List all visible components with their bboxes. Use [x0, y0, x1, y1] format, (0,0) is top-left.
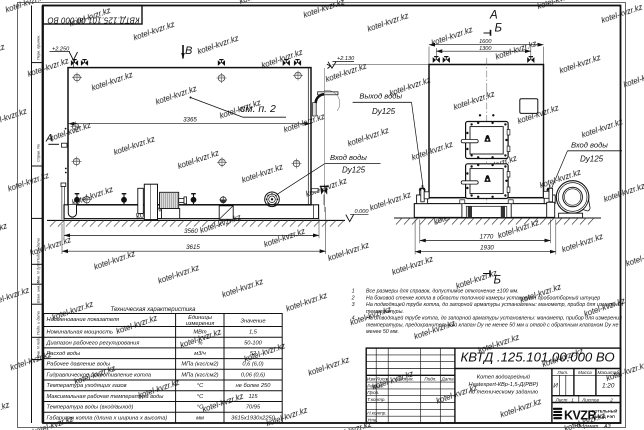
svg-text:70/95: 70/95	[246, 405, 261, 411]
svg-text:не более 250: не более 250	[236, 383, 272, 389]
svg-text:Котел водогрейный: Котел водогрейный	[477, 374, 530, 381]
svg-text:2: 2	[351, 295, 355, 301]
svg-text:мм: мм	[196, 415, 204, 421]
svg-text:м3/ч: м3/ч	[194, 351, 206, 357]
svg-text:Т.контр.: Т.контр.	[367, 397, 386, 402]
svg-text:измерения: измерения	[186, 321, 214, 327]
svg-text:1:20: 1:20	[602, 383, 615, 390]
svg-text:Выход воды: Выход воды	[359, 92, 402, 101]
svg-text:Диапазон рабочего регулировани: Диапазон рабочего регулирования	[46, 340, 140, 346]
svg-text:115: 115	[248, 394, 258, 400]
svg-text:Подп. и дата: Подп. и дата	[37, 238, 41, 262]
svg-text:Дата: Дата	[441, 376, 455, 381]
svg-text:Утв.: Утв.	[367, 417, 377, 422]
svg-text:Пров.: Пров.	[367, 390, 379, 395]
svg-text:Dy125: Dy125	[342, 165, 366, 174]
svg-text:ЗАВОД РЭП: ЗАВОД РЭП	[592, 414, 615, 419]
svg-text:Вход воды: Вход воды	[571, 141, 608, 150]
svg-text:На подводящей трубе котла, до: На подводящей трубе котла, до запорной а…	[366, 301, 624, 308]
svg-text:Heatexpert-КВр-1,5-Д(РВР): Heatexpert-КВр-1,5-Д(РВР)	[469, 382, 539, 388]
svg-text:КВТД .125.101.00.000 ВО: КВТД .125.101.00.000 ВО	[461, 349, 615, 364]
svg-text:менее 50 мм.: менее 50 мм.	[366, 329, 399, 335]
svg-text:Справ. Nо: Справ. Nо	[37, 144, 41, 162]
svg-text:3615: 3615	[186, 244, 200, 251]
svg-text:4: 4	[352, 316, 355, 322]
svg-text:Лист: Лист	[555, 397, 568, 402]
svg-text:Габариты котла (длина х ширина: Габариты котла (длина х ширина х высота)	[47, 415, 168, 421]
svg-text:Взам. инв. N: Взам. инв. N	[37, 281, 41, 303]
svg-text:Формат: Формат	[577, 424, 599, 430]
svg-text:А: А	[45, 132, 53, 144]
svg-text:Инв. N дубл.: Инв. N дубл.	[37, 261, 41, 283]
svg-text:Инв. N подл.: Инв. N подл.	[37, 336, 41, 358]
svg-text:Масштаб: Масштаб	[597, 370, 619, 375]
svg-text:Подп.: Подп.	[424, 376, 436, 381]
svg-text:0,6 (6,0): 0,6 (6,0)	[242, 362, 263, 368]
svg-text:Листов: Листов	[581, 397, 599, 402]
svg-text:Dy125: Dy125	[372, 107, 396, 116]
svg-text:В: В	[185, 45, 192, 57]
svg-text:50-100: 50-100	[244, 340, 263, 346]
svg-text:3615х1930х2250: 3615х1930х2250	[231, 415, 275, 421]
svg-text:температуры, предохранительный: температуры, предохранительный клапан Dу…	[366, 321, 618, 328]
svg-text:Изм: Изм	[367, 376, 376, 381]
svg-text:°С: °С	[197, 394, 204, 400]
svg-text:1: 1	[571, 397, 574, 402]
svg-text:Подп. и дата: Подп. и дата	[37, 311, 41, 335]
svg-text:1: 1	[352, 289, 355, 295]
svg-text:3365: 3365	[183, 117, 197, 124]
svg-text:по техническому заданию: по техническому заданию	[469, 390, 539, 396]
svg-text:Наименование показателя: Наименование показателя	[47, 317, 120, 323]
svg-text:N докум.: N докум.	[395, 376, 414, 381]
svg-text:КВТД.125.101.00.000 ВО: КВТД.125.101.00.000 ВО	[47, 16, 139, 25]
svg-text:Температура воды (вход/выход): Температура воды (вход/выход)	[47, 405, 134, 411]
svg-text:Вход воды: Вход воды	[330, 153, 367, 162]
svg-text:3: 3	[352, 302, 355, 308]
svg-text:Б: Б	[495, 23, 503, 35]
svg-text:1600: 1600	[479, 39, 492, 45]
svg-text:Лист: Лист	[375, 376, 388, 381]
svg-text:Техническая характеристика: Техническая характеристика	[111, 307, 197, 313]
svg-text:%: %	[197, 340, 202, 346]
svg-text:1770: 1770	[480, 233, 494, 240]
svg-text:А3: А3	[603, 424, 611, 430]
svg-text:2: 2	[609, 397, 613, 402]
svg-text:На боковой стенке котла в обла: На боковой стенке котла в области топочн…	[366, 294, 600, 301]
svg-text:Масса: Масса	[578, 370, 592, 375]
svg-text:Значение: Значение	[241, 319, 266, 325]
svg-text:0,06 (0,6): 0,06 (0,6)	[241, 372, 265, 378]
svg-text:1,5: 1,5	[249, 330, 258, 336]
svg-text:52: 52	[250, 351, 257, 357]
svg-text:1300: 1300	[479, 46, 492, 52]
svg-text:Dy125: Dy125	[580, 155, 604, 164]
svg-text:3560: 3560	[184, 228, 198, 235]
svg-text:Лит.: Лит.	[557, 370, 569, 375]
svg-text:Температура уходящих газов: Температура уходящих газов	[47, 383, 127, 389]
svg-text:Б: Б	[494, 275, 502, 287]
svg-text:Разраб.: Разраб.	[367, 383, 384, 388]
svg-text:°С: °С	[197, 405, 204, 411]
svg-text:см. п. 2: см. п. 2	[240, 103, 276, 115]
svg-text:Н.контр.: Н.контр.	[367, 411, 386, 416]
svg-text:Номинальная мощность: Номинальная мощность	[47, 330, 113, 336]
svg-text:МВт: МВт	[193, 330, 207, 336]
svg-text:Расход воды: Расход воды	[47, 351, 81, 357]
svg-text:°С: °С	[197, 383, 204, 389]
svg-text:На отводящей трубе котла, до з: На отводящей трубе котла, до запорной ар…	[366, 315, 622, 322]
svg-text:А: А	[489, 10, 498, 22]
svg-text:Максимальная рабочая температу: Максимальная рабочая температура воды	[47, 394, 165, 400]
svg-text:Все размеры для справок, допус: Все размеры для справок, допустимое откл…	[366, 289, 519, 295]
svg-text:МПа (кгс/см2): МПа (кгс/см2)	[181, 362, 218, 368]
svg-text:Рабочее давление воды: Рабочее давление воды	[47, 362, 112, 368]
svg-text:Гидравлическое сопротивление к: Гидравлическое сопротивление котла	[47, 372, 152, 378]
svg-text:И: И	[553, 383, 558, 390]
svg-text:1930: 1930	[480, 245, 494, 252]
svg-text:Перв. примен.: Перв. примен.	[37, 35, 41, 60]
svg-text:МПа (кгс/см2): МПа (кгс/см2)	[181, 372, 218, 378]
svg-text:температуры.: температуры.	[366, 309, 404, 315]
